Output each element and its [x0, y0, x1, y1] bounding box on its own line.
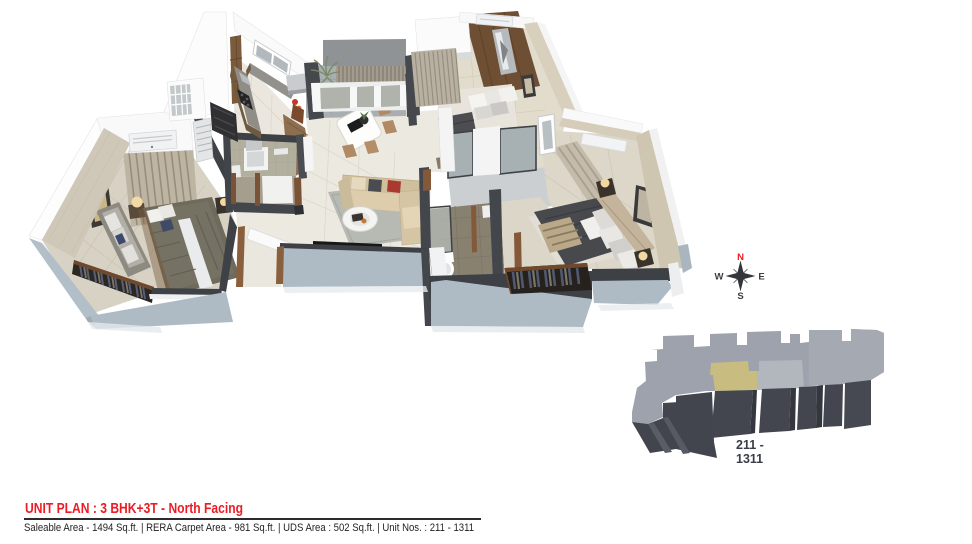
svg-text:N: N — [737, 252, 744, 263]
svg-text:E: E — [758, 272, 764, 283]
svg-text:W: W — [715, 272, 724, 283]
svg-text:S: S — [737, 291, 743, 302]
